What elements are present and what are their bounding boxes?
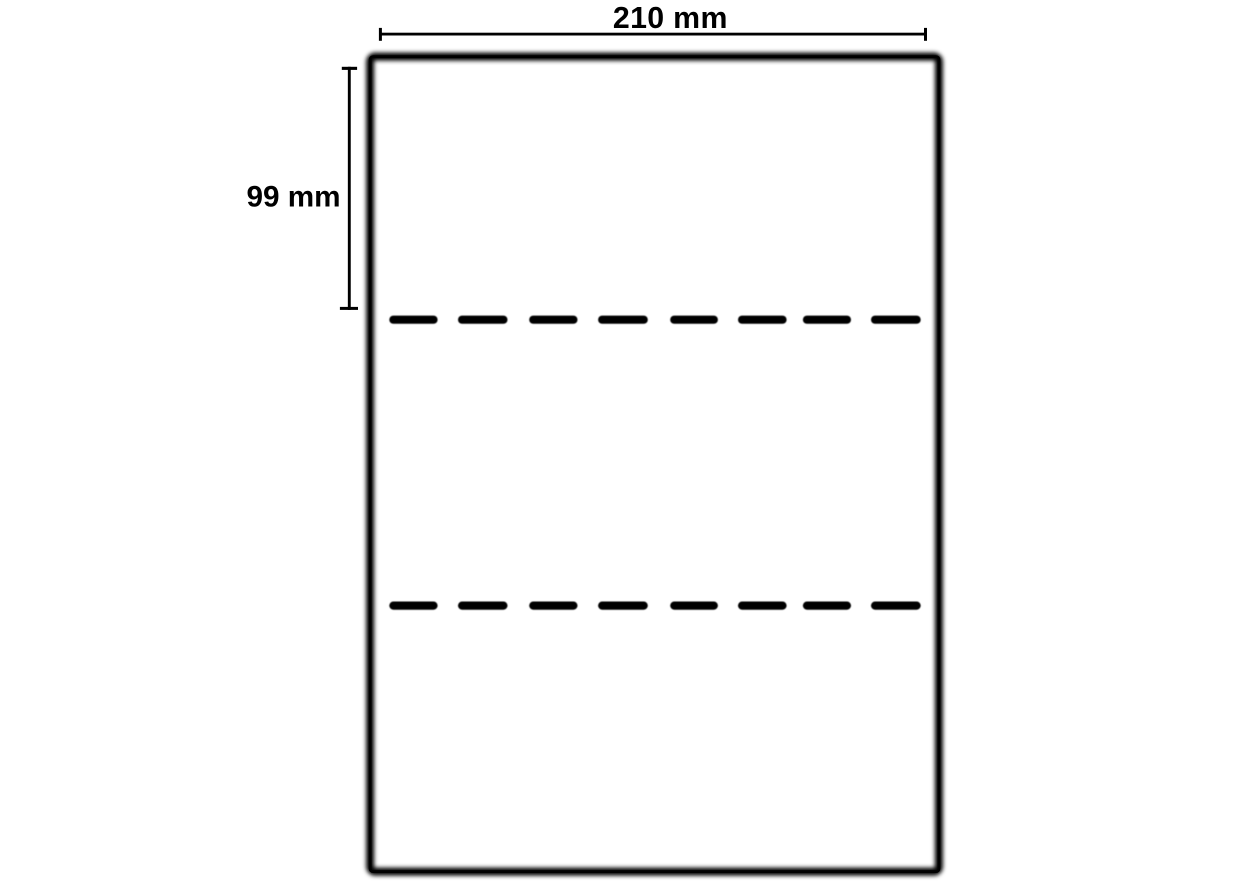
svg-text:210 mm: 210 mm — [613, 2, 728, 35]
svg-text:99 mm: 99 mm — [247, 180, 341, 213]
